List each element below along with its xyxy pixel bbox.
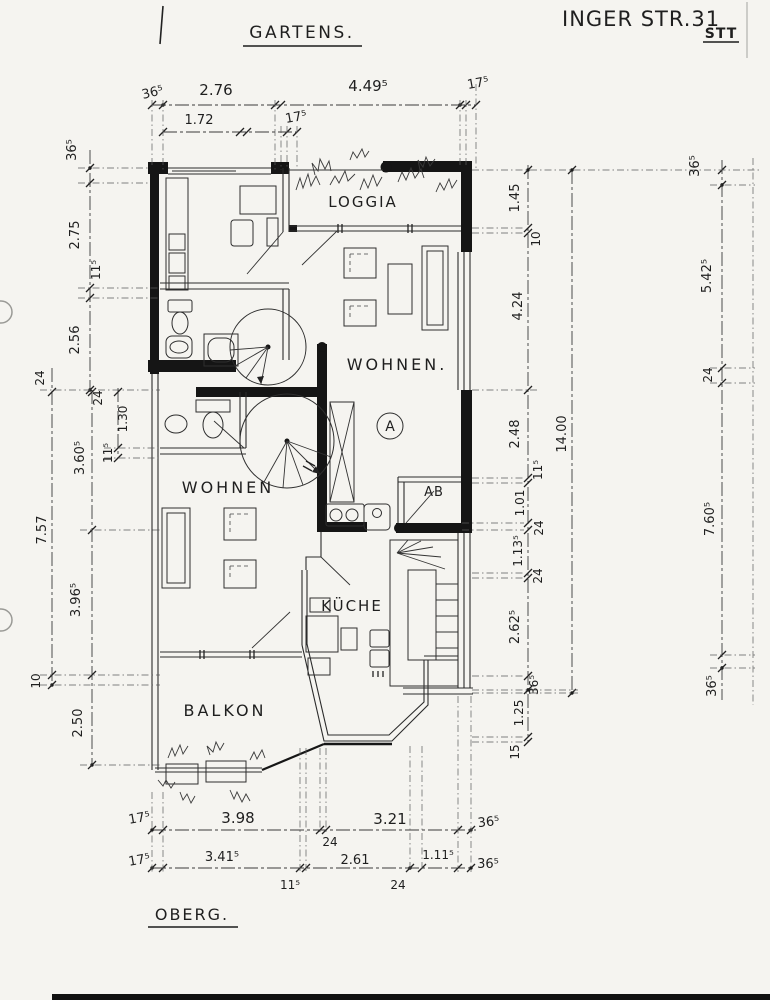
- sheet-code: STT: [705, 26, 738, 42]
- dim-label: 11⁵: [531, 460, 545, 480]
- street-address: INGER STR.31: [562, 7, 720, 31]
- dim-label: 36⁵: [477, 857, 499, 872]
- dim-label: 17⁵: [466, 74, 490, 93]
- dim-label: 1.30: [116, 406, 130, 433]
- dim-label: 15: [508, 744, 522, 759]
- dim-label: 11⁵: [101, 443, 115, 463]
- dim-label: 2.61: [341, 853, 370, 868]
- annotations: GARTENS. INGER STR.31 STT OBERG.: [148, 7, 739, 927]
- shaft-and-stove: [326, 402, 390, 530]
- floor-name-label: OBERG.: [155, 905, 229, 924]
- dim-label: 24: [322, 835, 337, 849]
- dim-label: 24: [531, 568, 545, 583]
- room-label-balkon: BALKON: [183, 701, 266, 720]
- dim-label: 36⁵: [705, 675, 720, 697]
- dim-label: 2.76: [199, 81, 232, 99]
- dim-label: 2.48: [508, 420, 523, 449]
- dim-label: 36⁵: [688, 155, 703, 177]
- scan-artifacts: [0, 2, 770, 1000]
- dim-label: 36⁵: [65, 139, 80, 161]
- partitions-and-windows: [152, 168, 473, 772]
- unit-mark-letter: A: [385, 419, 395, 435]
- dim-label: 17⁵: [284, 108, 308, 127]
- room-label-ab: AB: [424, 485, 444, 500]
- dimension-lines: [40, 84, 760, 872]
- dim-label: 1.11⁵: [422, 848, 454, 862]
- dim-label: 11⁵: [89, 260, 103, 280]
- dim-label: 2.62⁵: [508, 610, 523, 644]
- dim-label: 24: [390, 878, 405, 892]
- dim-label: 2.75: [68, 221, 83, 250]
- dim-label: 10: [29, 673, 43, 688]
- dim-label: 10: [529, 231, 543, 246]
- dim-label: 1.72: [185, 113, 214, 128]
- dim-label: 36⁵: [477, 814, 500, 831]
- dim-label: 1.13⁵: [511, 535, 525, 567]
- dim-label: 2.56: [68, 326, 83, 355]
- dim-label: 2.50: [71, 709, 86, 738]
- dim-label: 4.24: [511, 292, 526, 321]
- scanned-floorplan-page: 36⁵ 2.76 4.49⁵ 17⁵ 1.72 17⁵ 36⁵ 2.75 11⁵…: [0, 0, 770, 1000]
- garden-side-label: GARTENS.: [249, 23, 354, 43]
- floorplan-canvas: 36⁵ 2.76 4.49⁵ 17⁵ 1.72 17⁵ 36⁵ 2.75 11⁵…: [0, 0, 770, 1000]
- bathroom-fixtures: [166, 300, 238, 366]
- dim-label: 7.57: [35, 516, 50, 545]
- dim-label: 3.96⁵: [69, 583, 84, 617]
- room-labels: LOGGIA WOHNEN. A AB WOHNEN KÜCHE BALKON: [182, 193, 448, 720]
- dim-label: 3.21: [373, 810, 406, 828]
- dim-label: 4.49⁵: [348, 77, 387, 95]
- dim-label: 3.60⁵: [73, 441, 88, 475]
- dim-label: 1.45: [508, 184, 523, 213]
- dim-label: 24: [532, 520, 546, 535]
- wc-fixtures: [165, 400, 230, 438]
- dim-label: 36⁵: [527, 675, 541, 695]
- room-label-wohnen-lower: WOHNEN: [182, 478, 275, 497]
- dim-label: 3.41⁵: [205, 850, 239, 865]
- dim-label: 5.42⁵: [700, 259, 715, 293]
- dim-label: 24: [91, 390, 105, 405]
- dim-label: 1.25: [512, 700, 526, 727]
- furniture-upper-room: [166, 178, 278, 290]
- room-label-loggia: LOGGIA: [328, 193, 398, 211]
- dim-label: 24: [33, 370, 47, 385]
- dim-label: 14.00: [555, 415, 570, 452]
- dim-label: 3.98: [221, 809, 254, 827]
- dim-label: 7.60⁵: [703, 502, 718, 536]
- scan-edge-bar: [52, 994, 770, 1000]
- dim-label: 11⁵: [280, 878, 300, 892]
- furniture-wohnen-lower: [162, 508, 256, 588]
- room-label-kueche: KÜCHE: [321, 596, 383, 615]
- dim-label: 1.01: [513, 490, 527, 517]
- room-label-wohnen-upper: WOHNEN.: [347, 355, 448, 374]
- dim-label: 17⁵: [127, 851, 151, 870]
- dim-label: 24: [701, 367, 715, 382]
- dim-label: 36⁵: [140, 83, 165, 103]
- stray-pen-mark: [160, 6, 163, 44]
- dim-label: 17⁵: [127, 809, 151, 828]
- furniture-wohnen-upper: [344, 246, 448, 330]
